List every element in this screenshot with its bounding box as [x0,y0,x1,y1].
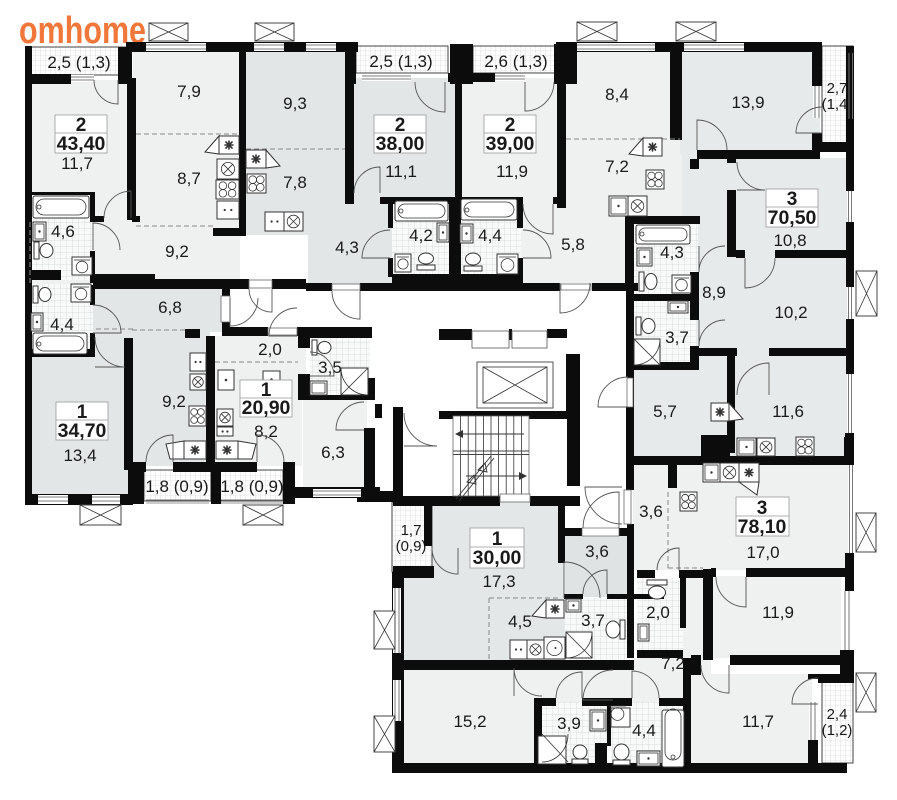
svg-text:2,6 (1,3): 2,6 (1,3) [484,52,547,71]
svg-text:70,50: 70,50 [768,207,817,229]
svg-text:4,5: 4,5 [508,612,532,631]
svg-text:6,3: 6,3 [321,443,345,462]
svg-text:15,2: 15,2 [453,712,486,731]
svg-text:10,8: 10,8 [773,231,806,250]
svg-text:4,4: 4,4 [478,226,502,245]
svg-text:2,7: 2,7 [827,80,848,97]
svg-text:5,8: 5,8 [561,235,585,254]
svg-text:9,2: 9,2 [162,392,186,411]
svg-text:11,9: 11,9 [762,603,794,622]
svg-text:43,40: 43,40 [57,133,106,155]
svg-text:5,7: 5,7 [653,402,677,421]
svg-text:(1,2): (1,2) [822,722,853,739]
svg-text:4,6: 4,6 [51,222,75,241]
svg-text:11,7: 11,7 [61,154,93,173]
svg-text:11,1: 11,1 [385,162,417,181]
svg-text:11,6: 11,6 [772,402,804,421]
svg-text:13,4: 13,4 [63,446,96,465]
svg-text:4,3: 4,3 [335,238,359,257]
svg-text:1,7: 1,7 [401,522,422,539]
svg-text:38,00: 38,00 [376,133,425,155]
svg-text:8,7: 8,7 [177,169,201,188]
svg-text:9,2: 9,2 [165,242,189,261]
svg-text:34,70: 34,70 [58,420,107,442]
svg-text:4,4: 4,4 [632,721,656,740]
svg-text:1,8 (0,9): 1,8 (0,9) [220,477,283,496]
svg-text:8,2: 8,2 [254,422,278,441]
svg-text:10,2: 10,2 [774,303,807,322]
svg-text:17,0: 17,0 [746,543,779,562]
svg-text:3,5: 3,5 [318,358,342,377]
svg-text:1,8 (0,9): 1,8 (0,9) [145,477,208,496]
svg-text:3,7: 3,7 [581,611,605,630]
svg-text:4,2: 4,2 [409,226,433,245]
svg-text:4,3: 4,3 [660,243,684,262]
svg-text:39,00: 39,00 [486,133,535,155]
svg-text:11,7: 11,7 [742,712,774,731]
svg-text:(0,9): (0,9) [396,538,427,555]
svg-text:78,10: 78,10 [738,516,787,538]
svg-text:2,4: 2,4 [827,706,848,723]
svg-text:2,5 (1,3): 2,5 (1,3) [47,53,110,72]
svg-text:2,0: 2,0 [646,603,670,622]
svg-text:3,6: 3,6 [639,502,663,521]
svg-text:2,0: 2,0 [258,340,282,359]
svg-text:13,9: 13,9 [731,93,764,112]
svg-text:30,00: 30,00 [473,547,522,569]
svg-text:7,2: 7,2 [605,157,629,176]
svg-text:7,9: 7,9 [177,82,201,101]
svg-text:3,6: 3,6 [585,542,609,561]
svg-text:7,8: 7,8 [283,173,307,192]
svg-text:17,3: 17,3 [482,572,515,591]
svg-text:7,2: 7,2 [661,654,685,673]
svg-text:3,9: 3,9 [557,714,581,733]
svg-text:20,90: 20,90 [242,397,291,419]
svg-text:4,4: 4,4 [50,315,74,334]
svg-text:3,7: 3,7 [665,328,689,347]
svg-text:8,9: 8,9 [702,283,726,302]
svg-text:2,5 (1,3): 2,5 (1,3) [369,52,432,71]
svg-text:6,8: 6,8 [158,298,182,317]
svg-text:11,9: 11,9 [496,162,528,181]
svg-text:8,4: 8,4 [605,85,629,104]
svg-text:9,3: 9,3 [283,94,307,113]
